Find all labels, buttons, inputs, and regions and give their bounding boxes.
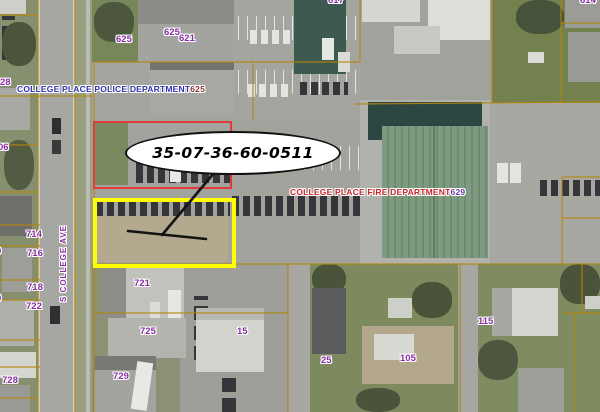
callout-leader-lines bbox=[0, 0, 600, 412]
parcel-id-text: 35-07-36-60-0511 bbox=[152, 144, 314, 162]
aerial-parcel-map[interactable]: 6176146256256212806714716071872207287217… bbox=[0, 0, 600, 412]
parcel-id-callout: 35-07-36-60-0511 bbox=[125, 131, 341, 175]
